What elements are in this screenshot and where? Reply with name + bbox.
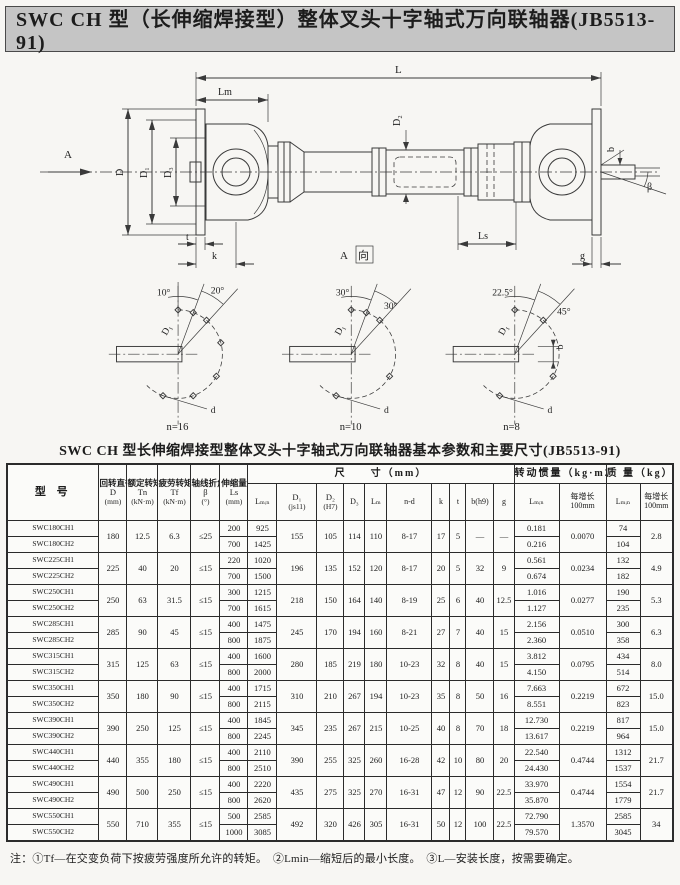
cell: 20 <box>432 553 450 585</box>
cell: SWC250CH2 <box>7 601 99 617</box>
cell: 817 <box>606 713 640 729</box>
group-inertia: 转动惯量（kg·m2） <box>514 464 606 484</box>
cell: 260 <box>365 745 387 777</box>
bolt-circle-diagrams: 10° 20° D₁ d n=16 30° 30° D₁ d n=10 <box>0 282 664 434</box>
cell: 132 <box>606 553 640 569</box>
cell: SWC225CH1 <box>7 553 99 569</box>
cell: SWC440CH2 <box>7 761 99 777</box>
cell: 267 <box>344 713 365 745</box>
cell: 40 <box>127 553 158 585</box>
cell: 12 <box>450 777 466 809</box>
cell: 255 <box>317 745 344 777</box>
cell: 285 <box>99 617 127 649</box>
cell: 6.3 <box>640 617 673 649</box>
cell: 180 <box>158 745 191 777</box>
cell: 700 <box>220 569 248 585</box>
cell: 1.127 <box>514 601 559 617</box>
cell: 196 <box>277 553 317 585</box>
cell: 135 <box>317 553 344 585</box>
table-row: SWC490CH1490500250≤154002220435275325270… <box>7 777 673 793</box>
b-dim-label: b <box>606 147 617 152</box>
cell: SWC285CH2 <box>7 633 99 649</box>
cell: 1020 <box>248 553 277 569</box>
cell: 0.674 <box>514 569 559 585</box>
cell: 105 <box>317 521 344 553</box>
cell: 434 <box>606 649 640 665</box>
cell: 8-21 <box>387 617 432 649</box>
cell: 5 <box>450 521 466 553</box>
cell: 490 <box>99 777 127 809</box>
cell: 218 <box>277 585 317 617</box>
cell: 0.4744 <box>559 745 606 777</box>
cell: SWC490CH1 <box>7 777 99 793</box>
cell: 110 <box>365 521 387 553</box>
cell: 270 <box>365 777 387 809</box>
cell: 15.0 <box>640 681 673 713</box>
cell: 275 <box>317 777 344 809</box>
cell: 4.150 <box>514 665 559 681</box>
cell: 235 <box>317 713 344 745</box>
bolt-circle-dia-label: D₁ <box>496 323 511 337</box>
cell: 32 <box>466 553 494 585</box>
cell: 305 <box>365 809 387 842</box>
cell: 80 <box>466 745 494 777</box>
k-dim-label: k <box>212 251 217 262</box>
cell: 310 <box>277 681 317 713</box>
cell: SWC550CH1 <box>7 809 99 825</box>
cell: 8.0 <box>640 649 673 681</box>
cell: 24.430 <box>514 761 559 777</box>
cell: 33.970 <box>514 777 559 793</box>
cell: 15 <box>494 617 514 649</box>
angle1-label: 22.5° <box>492 287 513 298</box>
cell: 435 <box>277 777 317 809</box>
cell: 79.570 <box>514 825 559 842</box>
col-lm: Lₘ <box>365 484 387 521</box>
cell: 90 <box>466 777 494 809</box>
t-dim-label: t <box>186 232 189 243</box>
col-nd: n-d <box>387 484 432 521</box>
cell: SWC490CH2 <box>7 793 99 809</box>
cell: SWC225CH2 <box>7 569 99 585</box>
cell: 800 <box>220 697 248 713</box>
cell: 400 <box>220 713 248 729</box>
cell: 280 <box>277 649 317 681</box>
cell: 12.5 <box>127 521 158 553</box>
l-dim-label: L <box>395 64 402 76</box>
cell: 245 <box>277 617 317 649</box>
cell: 1600 <box>248 649 277 665</box>
cell: 104 <box>606 537 640 553</box>
cell: 21.7 <box>640 745 673 777</box>
cell: 17 <box>432 521 450 553</box>
col-b: b(h9) <box>466 484 494 521</box>
cell: 2000 <box>248 665 277 681</box>
cell: 0.216 <box>514 537 559 553</box>
cell: 8-19 <box>387 585 432 617</box>
cell: 235 <box>606 601 640 617</box>
angle1-label: 10° <box>157 287 171 298</box>
cell: 20 <box>494 745 514 777</box>
cell: 22.5 <box>494 777 514 809</box>
bolt-diagram-n10: 30° 30° D₁ d n=10 <box>282 284 411 433</box>
cell: 125 <box>127 649 158 681</box>
angle2-label: 30° <box>384 301 398 312</box>
cell: 250 <box>99 585 127 617</box>
cell: 4.9 <box>640 553 673 585</box>
cell: 3085 <box>248 825 277 842</box>
angle2-label: 20° <box>211 286 225 297</box>
cell: 180 <box>127 681 158 713</box>
cell: 250 <box>127 713 158 745</box>
lm-dim-label: Lm <box>218 87 232 98</box>
spec-table-header: 型 号 回转直径 D (mm) 额定转矩 Tn (kN·m) 疲劳转矩 Tf (… <box>7 464 673 521</box>
cell: 12 <box>450 809 466 842</box>
cell: 345 <box>277 713 317 745</box>
cell: 40 <box>466 617 494 649</box>
table-row: SWC440CH1440355180≤154002110390255325260… <box>7 745 673 761</box>
cell: 2620 <box>248 793 277 809</box>
cell: 32 <box>432 649 450 681</box>
col-diameter: 回转直径 D (mm) <box>99 464 127 521</box>
cell: 400 <box>220 745 248 761</box>
cell: 492 <box>277 809 317 842</box>
cell: 194 <box>365 681 387 713</box>
cell: 155 <box>277 521 317 553</box>
cell: ≤15 <box>191 553 220 585</box>
cell: 500 <box>220 809 248 825</box>
cell: 45 <box>158 617 191 649</box>
cell: 2.8 <box>640 521 673 553</box>
cell: 170 <box>317 617 344 649</box>
cell: 2585 <box>248 809 277 825</box>
cell: 8 <box>450 649 466 681</box>
cell: 350 <box>99 681 127 713</box>
cell: ≤15 <box>191 681 220 713</box>
cell: 6 <box>450 585 466 617</box>
cell: 114 <box>344 521 365 553</box>
col-t: t <box>450 484 466 521</box>
cell: ≤25 <box>191 521 220 553</box>
cell: 0.2219 <box>559 713 606 745</box>
cell: 325 <box>344 745 365 777</box>
cell: SWC550CH2 <box>7 825 99 842</box>
cell: 164 <box>344 585 365 617</box>
cell: 1537 <box>606 761 640 777</box>
cell: 150 <box>317 585 344 617</box>
cell: 1500 <box>248 569 277 585</box>
cell: 27 <box>432 617 450 649</box>
cell: 10-23 <box>387 649 432 681</box>
cell: 400 <box>220 649 248 665</box>
cell: 180 <box>99 521 127 553</box>
table-row: SWC390CH1390250125≤154001845345235267215… <box>7 713 673 729</box>
cell: 72.790 <box>514 809 559 825</box>
cell: ≤15 <box>191 617 220 649</box>
cell: 22.540 <box>514 745 559 761</box>
cell: 1554 <box>606 777 640 793</box>
cell: 200 <box>220 521 248 537</box>
cell: 1615 <box>248 601 277 617</box>
cell: 325 <box>344 777 365 809</box>
cell: 40 <box>466 649 494 681</box>
cell: 160 <box>365 617 387 649</box>
hole-dia-label: d <box>384 405 389 416</box>
cell: SWC390CH2 <box>7 729 99 745</box>
cell: 0.0277 <box>559 585 606 617</box>
cell: 5.3 <box>640 585 673 617</box>
col-rated-torque: 额定转矩 Tn (kN·m) <box>127 464 158 521</box>
cell: ≤15 <box>191 713 220 745</box>
bolt-diagram-n16: 10° 20° D₁ d n=16 <box>109 282 238 433</box>
cell: 700 <box>220 537 248 553</box>
cell: 400 <box>220 777 248 793</box>
d3-dim-label: D₃ <box>163 167 174 178</box>
cell: 16 <box>494 681 514 713</box>
cell: 320 <box>317 809 344 842</box>
cell: 185 <box>317 649 344 681</box>
cell: 42 <box>432 745 450 777</box>
ls-dim-label: Ls <box>478 231 488 242</box>
cell: — <box>466 521 494 553</box>
cell: 1715 <box>248 681 277 697</box>
cell: 6.3 <box>158 521 191 553</box>
cell: 390 <box>99 713 127 745</box>
cell: 15 <box>494 649 514 681</box>
cell: 1475 <box>248 617 277 633</box>
cell: 8-17 <box>387 553 432 585</box>
cell: 0.0234 <box>559 553 606 585</box>
cell: 125 <box>158 713 191 745</box>
page-title: SWC CH 型（长伸缩焊接型）整体叉头十字轴式万向联轴器(JB5513-91) <box>16 3 664 55</box>
cell: ≤15 <box>191 777 220 809</box>
bolt-circle-dia-label: D₁ <box>160 323 175 337</box>
table-row: SWC225CH12254020≤1522010201961351521208-… <box>7 553 673 569</box>
col-g: g <box>494 484 514 521</box>
bolt-count-label: n=16 <box>167 422 189 433</box>
cell: 1.3570 <box>559 809 606 842</box>
cell: 12.730 <box>514 713 559 729</box>
view-caption-a: A <box>340 250 348 262</box>
coupling-side-view: A β b L Lm <box>8 54 672 282</box>
cell: 440 <box>99 745 127 777</box>
cell: SWC350CH2 <box>7 697 99 713</box>
cell: 2110 <box>248 745 277 761</box>
cell: 40 <box>432 713 450 745</box>
cell: 100 <box>466 809 494 842</box>
hole-dia-label: d <box>211 405 216 416</box>
cell: 8-17 <box>387 521 432 553</box>
cell: 10 <box>450 745 466 777</box>
cell: 152 <box>344 553 365 585</box>
cell: 225 <box>99 553 127 585</box>
cell: 21.7 <box>640 777 673 809</box>
cell: 16-31 <box>387 809 432 842</box>
spec-table: 型 号 回转直径 D (mm) 额定转矩 Tn (kN·m) 疲劳转矩 Tf (… <box>6 463 674 842</box>
angle2-label: 45° <box>557 307 571 318</box>
table-row: SWC315CH131512563≤1540016002801852191801… <box>7 649 673 665</box>
cell: 63 <box>127 585 158 617</box>
bolt-circle-dia-label: D₁ <box>333 323 348 337</box>
table-title: SWC CH 型长伸缩焊接型整体叉头十字轴式万向联轴器基本参数和主要尺寸(JB5… <box>0 440 680 460</box>
view-caption-dir: 向 <box>358 248 369 262</box>
cell: SWC180CH1 <box>7 521 99 537</box>
d2-dim-label: D₂ <box>392 115 403 126</box>
cell: SWC350CH1 <box>7 681 99 697</box>
cell: 2115 <box>248 697 277 713</box>
col-mass-per100: 每增长 100mm <box>640 484 673 521</box>
cell: 500 <box>127 777 158 809</box>
cell: 10-25 <box>387 713 432 745</box>
cell: 1000 <box>220 825 248 842</box>
cell: ≤15 <box>191 809 220 842</box>
cell: 2220 <box>248 777 277 793</box>
cell: 2.360 <box>514 633 559 649</box>
table-row: SWC550CH1550710355≤155002585492320426305… <box>7 809 673 825</box>
cell: 22.5 <box>494 809 514 842</box>
col-model: 型 号 <box>7 464 99 521</box>
cell: 1779 <box>606 793 640 809</box>
col-k: k <box>432 484 450 521</box>
col-extension: 伸缩量 Ls (mm) <box>220 464 248 521</box>
cell: 355 <box>127 745 158 777</box>
cell: 215 <box>365 713 387 745</box>
cell: 182 <box>606 569 640 585</box>
cell: 90 <box>127 617 158 649</box>
footnote: 注：①Tf—在交变负荷下按疲劳强度所允许的转矩。 ②Lmin—缩短后的最小长度。… <box>10 850 670 866</box>
cell: 5 <box>450 553 466 585</box>
cell: ≤15 <box>191 585 220 617</box>
cell: 672 <box>606 681 640 697</box>
cell: 7 <box>450 617 466 649</box>
cell: 10-23 <box>387 681 432 713</box>
cell: 800 <box>220 633 248 649</box>
cell: 50 <box>432 809 450 842</box>
cell: SWC250CH1 <box>7 585 99 601</box>
spec-table-body: SWC180CH118012.56.3≤25200925155105114110… <box>7 521 673 842</box>
cell: 2.156 <box>514 617 559 633</box>
cell: SWC285CH1 <box>7 617 99 633</box>
cell: 140 <box>365 585 387 617</box>
col-inertia-per100: 每增长 100mm <box>559 484 606 521</box>
cell: SWC315CH2 <box>7 665 99 681</box>
g-dim-label: g <box>580 251 585 262</box>
cell: 1215 <box>248 585 277 601</box>
bolt-diagram-n8: b 22.5° 45° D₁ d n=8 <box>446 284 575 433</box>
cell: 15.0 <box>640 713 673 745</box>
cell: 300 <box>606 617 640 633</box>
cell: 13.617 <box>514 729 559 745</box>
cell: SWC390CH1 <box>7 713 99 729</box>
cell: 355 <box>158 809 191 842</box>
group-mass: 质 量（kg） <box>606 464 673 484</box>
cell: 514 <box>606 665 640 681</box>
cell: 2585 <box>606 809 640 825</box>
cell: 0.4744 <box>559 777 606 809</box>
cell: 120 <box>365 553 387 585</box>
cell: 315 <box>99 649 127 681</box>
cell: 426 <box>344 809 365 842</box>
cell: 50 <box>466 681 494 713</box>
cell: 400 <box>220 681 248 697</box>
cell: ≤15 <box>191 745 220 777</box>
table-row: SWC285CH12859045≤1540014752451701941608-… <box>7 617 673 633</box>
cell: 20 <box>158 553 191 585</box>
cell: 210 <box>317 681 344 713</box>
cell: SWC440CH1 <box>7 745 99 761</box>
cell: 219 <box>344 649 365 681</box>
cell: 190 <box>606 585 640 601</box>
view-arrow-icon <box>80 169 92 176</box>
cell: 8.551 <box>514 697 559 713</box>
group-dimensions: 尺 寸（mm） <box>248 464 514 484</box>
cell: 7.663 <box>514 681 559 697</box>
cell: 1.016 <box>514 585 559 601</box>
cell: 70 <box>466 713 494 745</box>
cell: 390 <box>277 745 317 777</box>
bolt-count-label: n=10 <box>340 422 362 433</box>
cell: SWC315CH1 <box>7 649 99 665</box>
cell: 9 <box>494 553 514 585</box>
d-dim-label: D <box>115 169 126 176</box>
hub-b-dim-label: b <box>555 344 566 349</box>
col-fatigue-torque: 疲劳转矩 Tf (kN·m) <box>158 464 191 521</box>
cell: 8 <box>450 713 466 745</box>
cell: SWC180CH2 <box>7 537 99 553</box>
cell: 800 <box>220 761 248 777</box>
cell: 358 <box>606 633 640 649</box>
cell: 1425 <box>248 537 277 553</box>
cell: 300 <box>220 585 248 601</box>
cell: 35.870 <box>514 793 559 809</box>
cell: 90 <box>158 681 191 713</box>
col-d3: D₃ <box>344 484 365 521</box>
d1-dim-label: D₁ <box>139 167 150 178</box>
cell: ≤15 <box>191 649 220 681</box>
cell: 35 <box>432 681 450 713</box>
col-bend-angle: 轴线折角 β (°) <box>191 464 220 521</box>
cell: 1845 <box>248 713 277 729</box>
cell: 63 <box>158 649 191 681</box>
cell: 25 <box>432 585 450 617</box>
cell: 0.0510 <box>559 617 606 649</box>
table-row: SWC250CH12506331.5≤153001215218150164140… <box>7 585 673 601</box>
cell: 194 <box>344 617 365 649</box>
cell: 964 <box>606 729 640 745</box>
col-d1: D₁ (js11) <box>277 484 317 521</box>
cell: 3.812 <box>514 649 559 665</box>
bolt-count-label: n=8 <box>503 422 520 433</box>
cell: 16-28 <box>387 745 432 777</box>
hole-dia-label: d <box>547 405 552 416</box>
cell: 823 <box>606 697 640 713</box>
cell: 0.181 <box>514 521 559 537</box>
angle1-label: 30° <box>336 287 350 298</box>
beta-dim-label: β <box>647 182 652 193</box>
cell: 1312 <box>606 745 640 761</box>
cell: 180 <box>365 649 387 681</box>
cell: 710 <box>127 809 158 842</box>
cell: — <box>494 521 514 553</box>
cell: 220 <box>220 553 248 569</box>
cell: 0.561 <box>514 553 559 569</box>
cell: 8 <box>450 681 466 713</box>
cell: 400 <box>220 617 248 633</box>
cell: 800 <box>220 793 248 809</box>
cell: 12.5 <box>494 585 514 617</box>
cell: 0.0795 <box>559 649 606 681</box>
cell: 74 <box>606 521 640 537</box>
